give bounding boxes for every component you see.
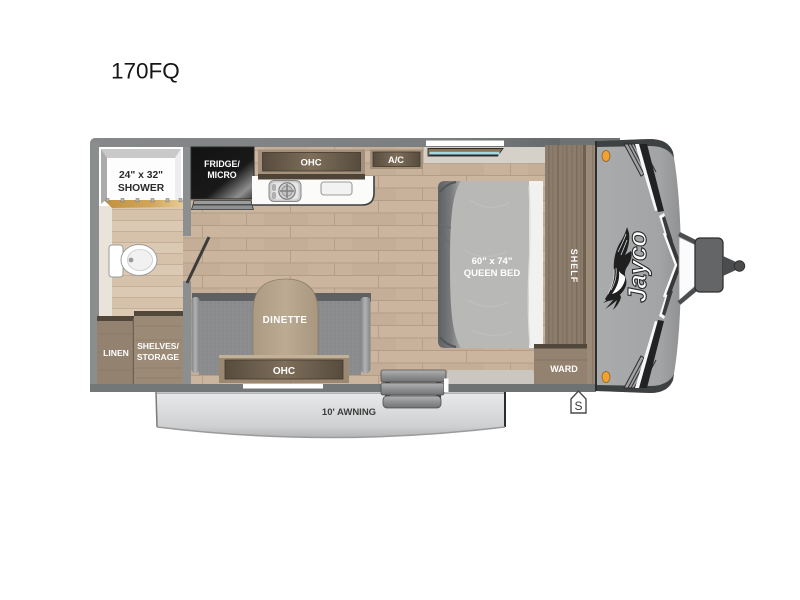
svg-text:SHELVES/: SHELVES/ bbox=[137, 341, 179, 351]
svg-text:10' AWNING: 10' AWNING bbox=[322, 407, 376, 418]
svg-text:Jayco: Jayco bbox=[622, 231, 652, 303]
svg-text:MICRO: MICRO bbox=[207, 170, 236, 180]
svg-text:60" x 74": 60" x 74" bbox=[472, 256, 513, 267]
svg-text:170FQ: 170FQ bbox=[111, 59, 180, 84]
svg-text:STORAGE: STORAGE bbox=[137, 352, 180, 362]
svg-text:SHOWER: SHOWER bbox=[118, 183, 165, 194]
svg-text:24" x 32": 24" x 32" bbox=[119, 170, 163, 181]
svg-text:A/C: A/C bbox=[388, 155, 404, 165]
svg-text:DINETTE: DINETTE bbox=[263, 315, 308, 326]
svg-text:OHC: OHC bbox=[273, 366, 295, 377]
svg-text:SHELF: SHELF bbox=[569, 249, 579, 284]
svg-text:QUEEN BED: QUEEN BED bbox=[464, 268, 521, 279]
svg-text:WARD: WARD bbox=[550, 364, 578, 374]
svg-text:S: S bbox=[574, 399, 582, 413]
svg-text:FRIDGE/: FRIDGE/ bbox=[204, 159, 240, 169]
svg-text:LINEN: LINEN bbox=[103, 348, 129, 358]
svg-text:OHC: OHC bbox=[300, 158, 321, 169]
